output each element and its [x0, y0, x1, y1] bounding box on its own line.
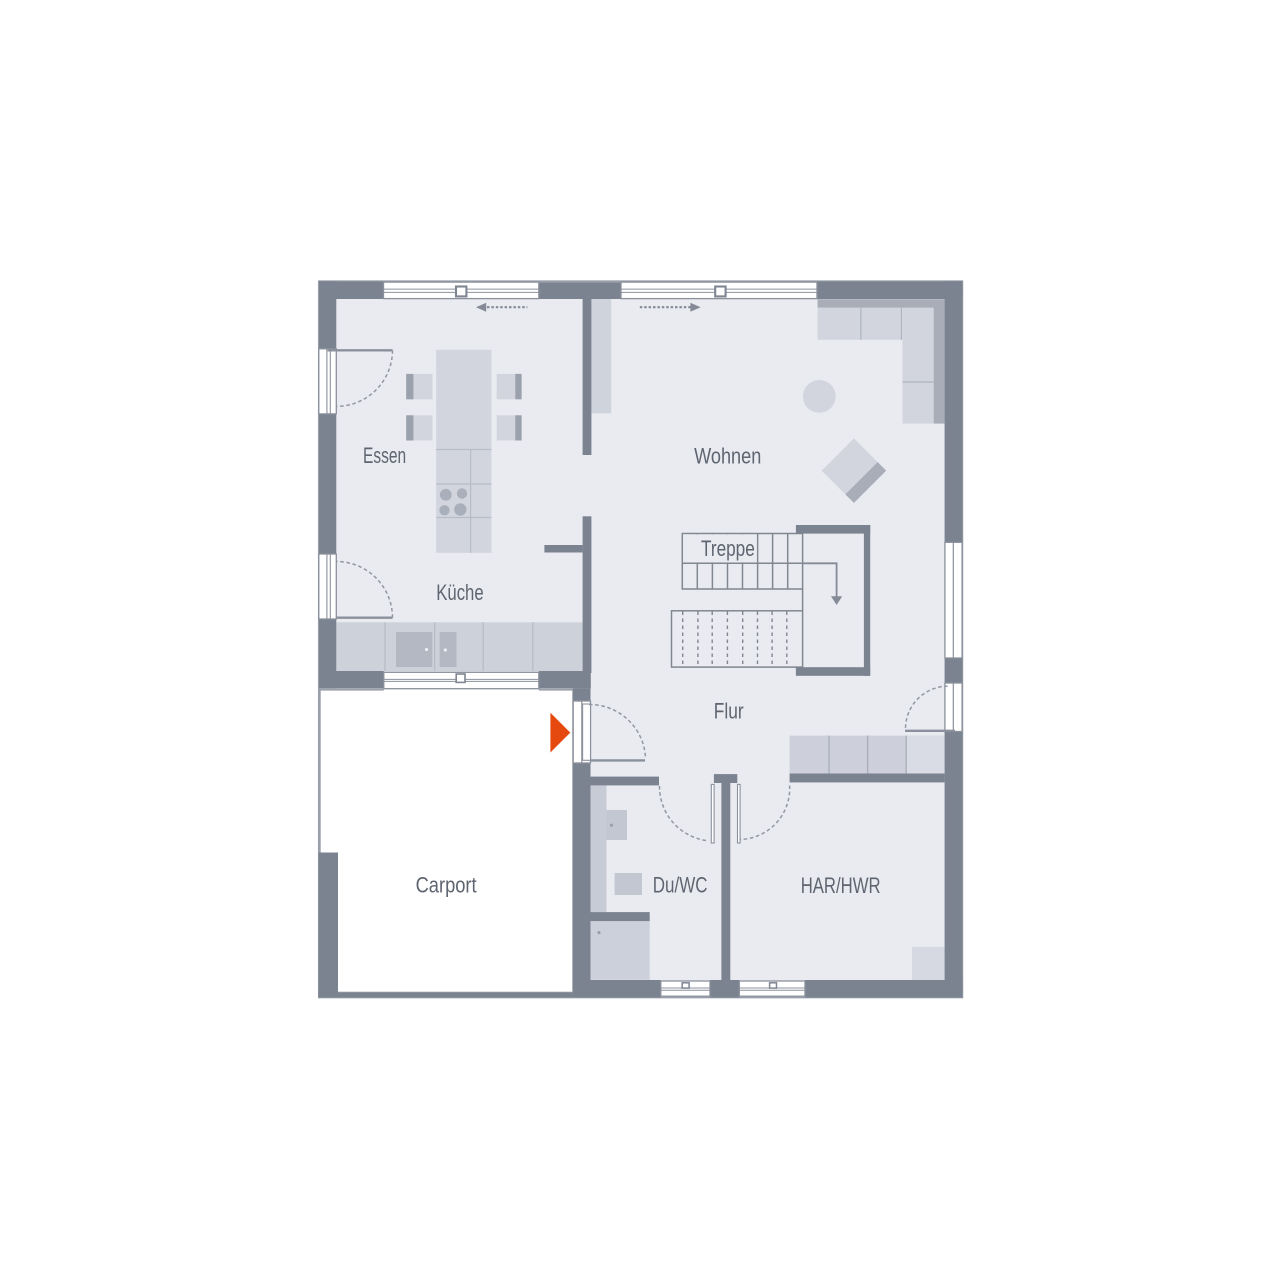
svg-text:Wohnen: Wohnen	[694, 444, 761, 469]
svg-text:Carport: Carport	[416, 873, 477, 898]
svg-text:HAR/HWR: HAR/HWR	[801, 873, 881, 898]
svg-text:Essen: Essen	[363, 443, 406, 468]
svg-text:Treppe: Treppe	[701, 536, 755, 561]
svg-text:Flur: Flur	[714, 698, 744, 723]
svg-text:Du/WC: Du/WC	[653, 873, 708, 898]
svg-text:Küche: Küche	[436, 580, 483, 605]
